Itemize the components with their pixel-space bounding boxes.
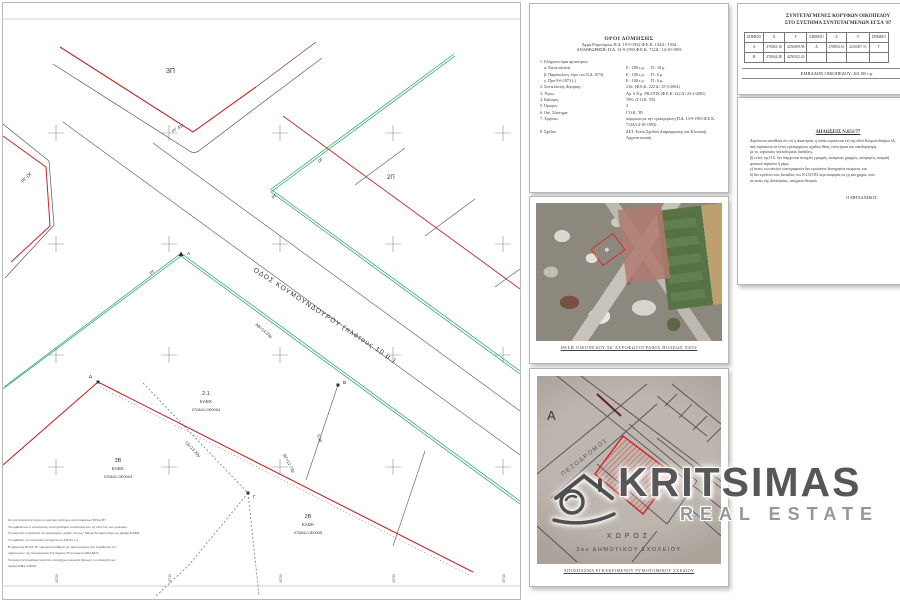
coords-title-2: ΣΤΟ ΣΥΣΤΗΜΑ ΣΥΝΤΕΤΑΓΜΕΝΩΝ ΕΓΣΑ '87 bbox=[738, 21, 900, 28]
coords-cell bbox=[826, 52, 847, 62]
coords-header-row: ΣΗΜΕΙΟ Χ Υ ΣΗΜΕΙΟ Χ Υ ΣΗΜΕΙΟ bbox=[745, 32, 889, 42]
block-2p-label: 2Π bbox=[387, 175, 395, 181]
terms-row-value: σύμφωνα με την εγκεκριμένη (Π.Δ. 13-9-19… bbox=[626, 116, 720, 129]
scanned-topographic-listing: { "drawing": { "street_label": "ΟΔΟΣ ΚΟΥ… bbox=[0, 0, 900, 600]
grid-tick-3: 45720 bbox=[279, 574, 283, 583]
coords-header-cell: Υ bbox=[847, 32, 870, 42]
terms-row: 8. Σχόλια:ΔΣΤ: Εντός Σχεδίου Διαμόρφωσης… bbox=[540, 129, 720, 142]
survey-plan-svg: Α Β Γ Δ ΟΔΟΣ ΚΟΥΜΟΥΝΔΟΥΡΟΥ (πλάτους 10 μ… bbox=[3, 3, 520, 599]
aerial-photo-panel: ΘΕΣΗ ΟΙΚΟΠΕΔΟΥ ΣΕ ΑΕΡΟΦΩΤΟΓΡΑΦΙΑ ΠΟΛΕΩΣ … bbox=[529, 196, 729, 364]
terms-row: 7. Χρήσεις:σύμφωνα με την εγκεκριμένη (Π… bbox=[540, 116, 720, 129]
grid-tick-5: 45740 bbox=[502, 574, 506, 583]
school-area-label: 2ου ΔΗΜΟΤΙΚΟΥ ΣΧΟΛΕΙΟΥ bbox=[576, 547, 681, 553]
declaration-line: σε αυτές της ιδιοκτησίας, υπόχρεου θεσμο… bbox=[750, 179, 900, 185]
note-line: Τα όρια απετυπώθηκαν κατόπιν υποδείξεως … bbox=[8, 557, 178, 564]
parcel3-number: 2Β bbox=[305, 514, 312, 520]
measure-bg: ΒΓ=12.73μ bbox=[282, 453, 296, 474]
subject-parcel-hatched bbox=[595, 436, 673, 514]
coords-cell: 478043.10 bbox=[764, 42, 785, 52]
survey-drawing-sheet: Α Β Γ Δ ΟΔΟΣ ΚΟΥΜΟΥΝΔΟΥΡΟΥ (πλάτους 10 μ… bbox=[2, 2, 521, 600]
parcel3-kaek-number: 070841-0Ε0005 bbox=[294, 530, 323, 535]
coords-cell: Γ bbox=[869, 42, 888, 52]
point-a-label: Α bbox=[187, 251, 191, 256]
terms-subtitle-2: ΑΝΑΘΕΩΡΗΣΗ: Π.Δ. 13-9-1993 Φ.Ε.Κ. 712Δ /… bbox=[530, 47, 728, 52]
cadastral-photo: Α ΠΕΖΟΔΡΟΜΟΣ ΧΩΡΟΣ 2ου ΔΗΜΟΤΙΚΟΥ ΣΧΟΛΕΙΟ… bbox=[537, 376, 721, 564]
note-line: ημέρα μέσω του δορυφορικού Συστήματος Εν… bbox=[8, 550, 178, 557]
aerial-photo bbox=[536, 203, 722, 341]
building-lines-green bbox=[3, 54, 520, 504]
coordinates-table-panel: ΣΥΝΤΕΤΑΓΜΕΝΕΣ ΚΟΡΥΦΩΝ ΟΙΚΟΠΕΔΟΥ ΣΤΟ ΣΥΣΤ… bbox=[737, 3, 900, 95]
note-line: Το εμβαδόν του οικοπέδου ανέρχεται σε 25… bbox=[8, 537, 178, 544]
coords-cell: Β bbox=[745, 52, 764, 62]
cadastral-extract-panel: Α ΠΕΖΟΔΡΟΜΟΣ ΧΩΡΟΣ 2ου ΔΗΜΟΤΙΚΟΥ ΣΧΟΛΕΙΟ… bbox=[529, 368, 729, 587]
rg2-line-label: ΡΓ bbox=[149, 268, 157, 276]
coords-cell bbox=[807, 52, 826, 62]
survey-point-markers bbox=[97, 252, 340, 495]
coords-header-cell: Υ bbox=[784, 32, 807, 42]
plot-area-label: ΕΜΒΑΔΟΝ ΟΙΚΟΠΕΔΟΥ: bbox=[801, 71, 852, 76]
coords-data-row: Β 478044.48 4250342.43 bbox=[745, 52, 889, 62]
point-b-label: Β bbox=[343, 380, 346, 385]
declarations-panel: ΔΗΛΩΣΕΙΣ Ν.651/77 Δηλώνεται υπεύθυνα ότι… bbox=[737, 97, 900, 285]
engineer-signature-label: Ο ΜΗΧΑΝΙΚΟΣ bbox=[846, 195, 900, 200]
grid-cross-marks bbox=[48, 125, 511, 475]
grid-tick-2: 45710 bbox=[168, 574, 172, 583]
note-line: αριθμό ΚΗΔ 3/2009. bbox=[8, 563, 178, 570]
coords-header-cell: Χ bbox=[764, 32, 785, 42]
measure-gd: ΓΔ=13.30μ bbox=[184, 440, 202, 458]
declarations-title: ΔΗΛΩΣΕΙΣ Ν.651/77 bbox=[738, 98, 900, 135]
declaration-line: Δηλώνεται υπεύθυνα ότι: α) η ιδιοκτησία,… bbox=[750, 139, 900, 145]
note-line: Το οικόπεδο ευρίσκεται σε εγκεκριμένο σχ… bbox=[8, 530, 178, 537]
coords-cell: 478094.16 bbox=[826, 42, 847, 52]
building-terms-document: ΟΡΟΙ ΔΟΜΗΣΗΣ Δγμα Ρυμοτομίας Π.Δ. 19-9-1… bbox=[529, 3, 729, 193]
regulation-lines-red bbox=[3, 42, 520, 572]
terms-rows: 1. Ελάχιστα όρια αρτιότητας: α. Κατά καν… bbox=[540, 59, 720, 141]
coords-header-cell: ΣΗΜΕΙΟ bbox=[807, 32, 826, 42]
block-3p-label: 3Π bbox=[166, 68, 175, 75]
grid-tick-4: 45730 bbox=[392, 574, 396, 583]
parcel1-kaek-label: ΚΑΕΚ bbox=[200, 399, 213, 404]
cadastral-plan-svg: Α ΠΕΖΟΔΡΟΜΟΣ ΧΩΡΟΣ 2ου ΔΗΜΟΤΙΚΟΥ ΣΧΟΛΕΙΟ… bbox=[537, 376, 721, 564]
coords-cell: Α bbox=[745, 42, 764, 52]
parcel3-kaek-label: ΚΑΕΚ bbox=[302, 522, 315, 527]
coords-cell: 4250307.51 bbox=[847, 42, 870, 52]
note-line: Οι συντεταγμένες είναι στο κρατικό σύστη… bbox=[8, 517, 178, 524]
parcel2-kaek-label: ΚΑΕΚ bbox=[112, 466, 125, 471]
point-d-label: Δ bbox=[89, 374, 92, 379]
coords-header-cell: ΣΗΜΕΙΟ bbox=[745, 32, 764, 42]
rg411-line-label: ΡΓ 411 bbox=[171, 122, 186, 134]
coords-cell: 478044.48 bbox=[764, 52, 785, 62]
plot-area-value: 261.88 τ.μ. bbox=[853, 71, 873, 76]
plot-area-line: ΕΜΒΑΔΟΝ ΟΙΚΟΠΕΔΟΥ: 261.88 τ.μ. bbox=[742, 68, 900, 79]
coordinates-table: ΣΗΜΕΙΟ Χ Υ ΣΗΜΕΙΟ Χ Υ ΣΗΜΕΙΟ Α 478043.10… bbox=[744, 32, 889, 63]
declarations-body: Δηλώνεται υπεύθυνα ότι: α) η ιδιοκτησία,… bbox=[750, 139, 900, 185]
rg-og-line-label: ΡΓ-ΟΓ bbox=[20, 171, 33, 184]
cadastral-point-a: Α bbox=[547, 408, 556, 423]
coords-header-cell: Χ bbox=[826, 32, 847, 42]
parcel1-number: 2.1 bbox=[202, 391, 210, 397]
note-line: Η εξάρτηση ΕΓΣΑ '87 πραγματοποιήθηκε με … bbox=[8, 544, 178, 551]
coords-data-row: Α 478043.10 4250309.96 Δ 478094.16 42503… bbox=[745, 42, 889, 52]
coords-cell bbox=[847, 52, 870, 62]
declaration-line: β) εντός της Ο.Σ. δεν διέρχονται ανοιχτέ… bbox=[750, 156, 900, 162]
note-line: Τα εμβαδά και οι αποστάσεις υπολογίσθηκα… bbox=[8, 524, 178, 531]
terms-row-label: 7. Χρήσεις: bbox=[540, 116, 626, 129]
plot-boundary-lines bbox=[3, 58, 520, 546]
parcel2-kaek-number: 070841-0Ε0003 bbox=[104, 474, 133, 479]
measure-seg: 5.00 bbox=[316, 434, 323, 444]
cadastral-caption: ΑΠΟΣΠΑΣΜΑ ΕΓΚΕΚΡΙΜΕΝΟΥ ΡΥΜΟΤΟΜΙΚΟΥ ΣΧΕΔΙ… bbox=[530, 568, 728, 573]
street-name-label: ΟΔΟΣ ΚΟΥΜΟΥΝΔΟΥΡΟΥ (πλάτους 10 μ.) bbox=[252, 266, 398, 365]
coords-cell: 4250342.43 bbox=[784, 52, 807, 62]
coords-cell: Δ bbox=[807, 42, 826, 52]
point-g-label: Γ bbox=[253, 494, 256, 499]
aerial-caption: ΘΕΣΗ ΟΙΚΟΠΕΔΟΥ ΣΕ ΑΕΡΟΦΩΤΟΓΡΑΦΙΑ ΠΟΛΕΩΣ … bbox=[530, 345, 728, 350]
measure-ab: ΑΒ=14.03μ bbox=[254, 322, 274, 340]
coords-cell: 4250309.96 bbox=[784, 42, 807, 52]
coords-header-cell: ΣΗΜΕΙΟ bbox=[869, 32, 888, 42]
terms-row-value: ΔΣΤ: Εντός Σχεδίου Διαμόρφωσης και Κλασι… bbox=[626, 129, 720, 142]
parcel1-kaek-number: 070841-0Ε0004 bbox=[192, 407, 221, 412]
survey-notes-block: Οι συντεταγμένες είναι στο κρατικό σύστη… bbox=[8, 517, 178, 570]
grid-tick-1: 45700 bbox=[55, 574, 59, 583]
coords-cell bbox=[869, 52, 888, 62]
terms-row-label: 8. Σχόλια: bbox=[540, 129, 626, 142]
parcel2-number: 3Β bbox=[115, 458, 122, 464]
coords-title-1: ΣΥΝΤΕΤΑΓΜΕΝΕΣ ΚΟΡΥΦΩΝ ΟΙΚΟΠΕΔΟΥ bbox=[738, 14, 900, 21]
xoros-label: ΧΩΡΟΣ bbox=[607, 533, 651, 540]
school-court-area bbox=[618, 205, 671, 284]
